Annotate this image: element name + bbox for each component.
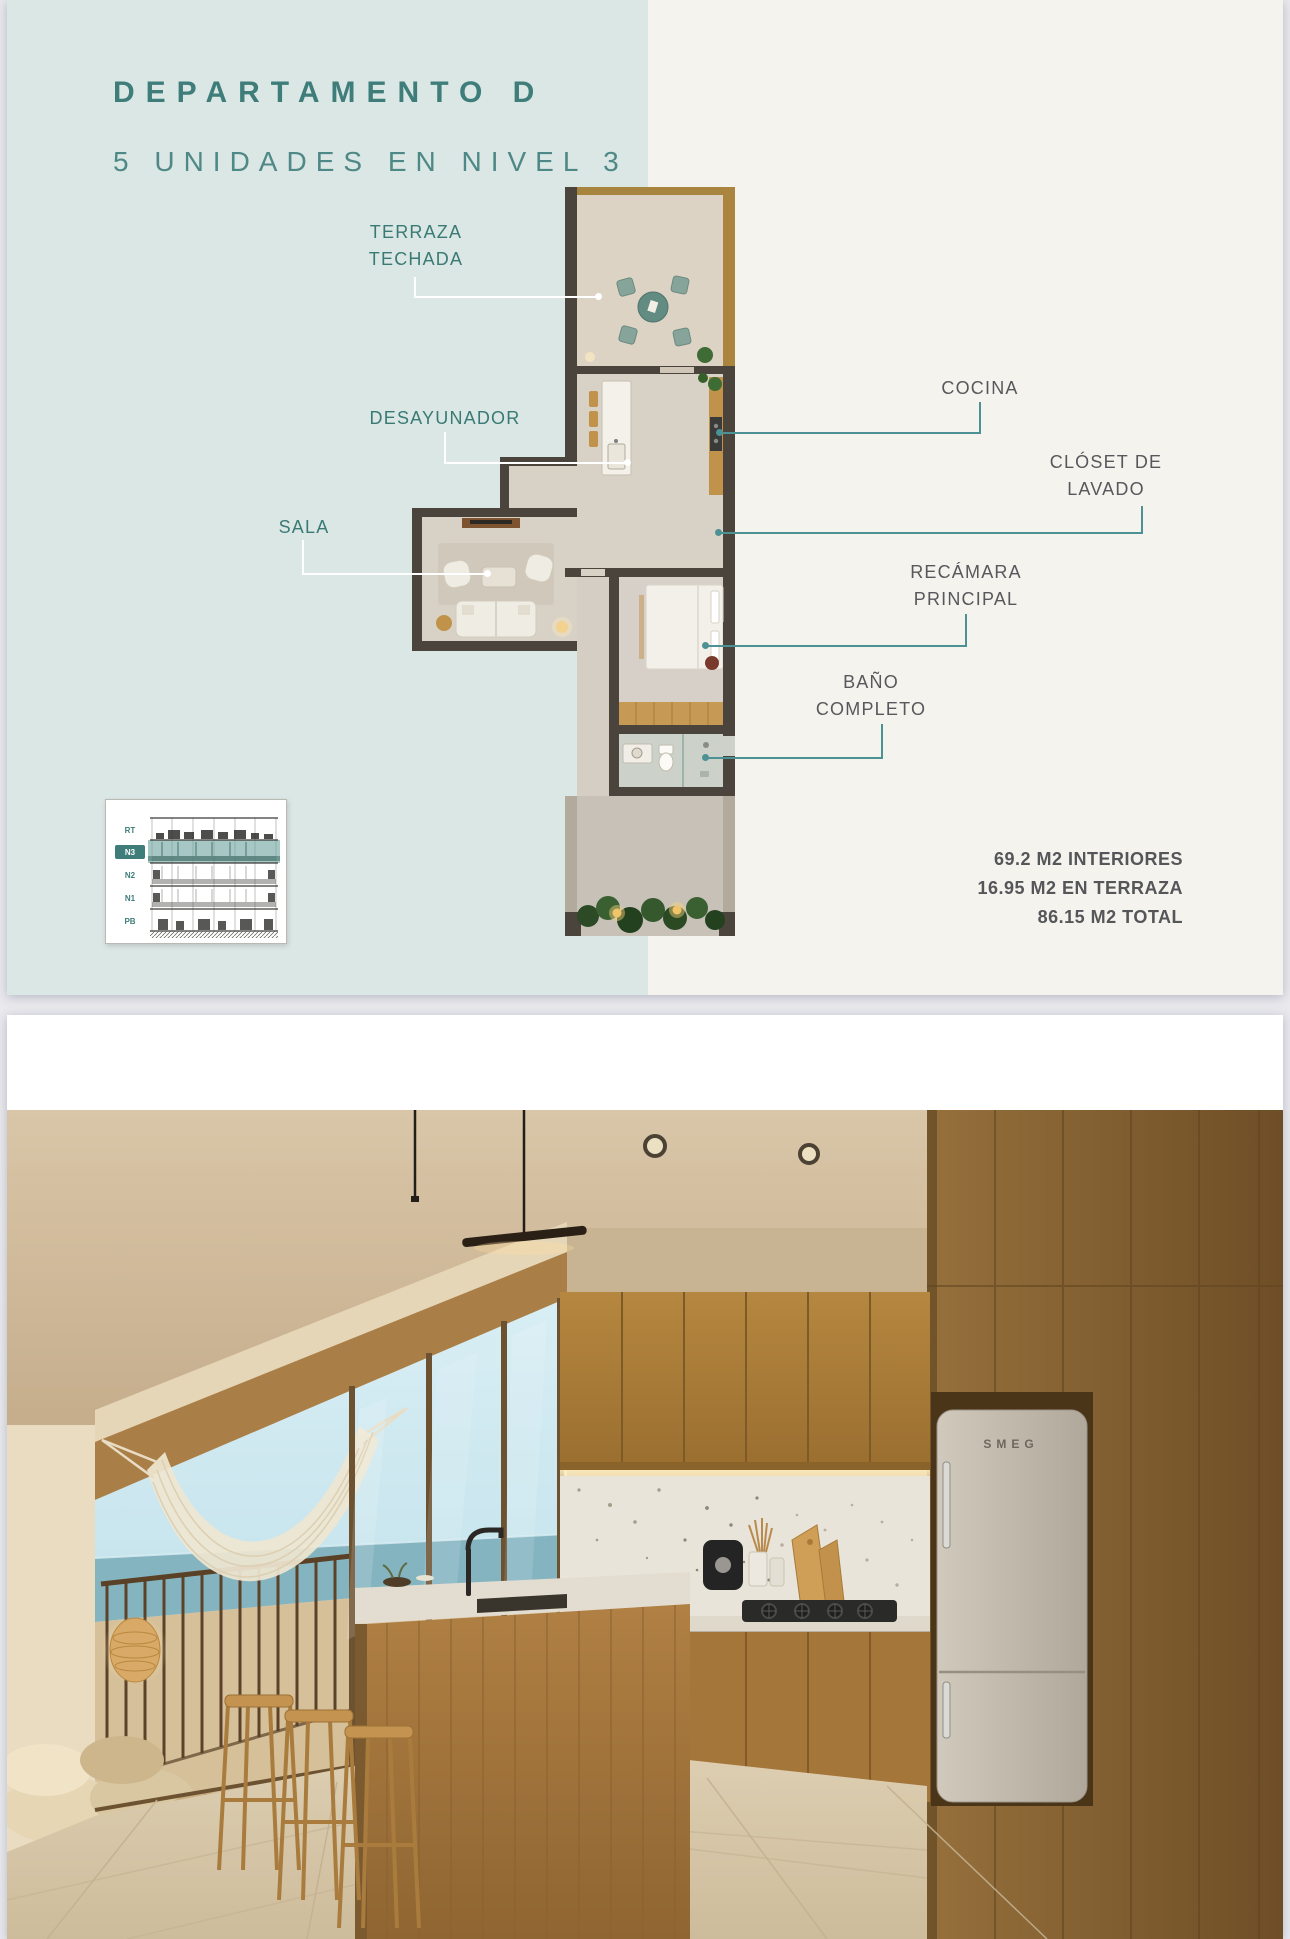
elevation-level-n2: N2 xyxy=(125,871,136,880)
plan-entry-nook xyxy=(500,457,577,508)
label-bano-completo: BAÑO COMPLETO xyxy=(816,669,926,723)
bano-leader-dot xyxy=(702,754,709,761)
area-stats: 69.2 M2 INTERIORES 16.95 M2 EN TERRAZA 8… xyxy=(977,845,1183,932)
elevation-level-pb: PB xyxy=(124,917,135,926)
elevation-key-card: RT N3 N2 N1 PB xyxy=(105,799,287,944)
floorplan-page: DEPARTAMENTO D 5 UNIDADES EN NIVEL 3 xyxy=(7,0,1283,995)
terraza-leader-dot xyxy=(595,293,602,300)
desayunador-leader-line xyxy=(444,462,627,464)
elevation-roof-items xyxy=(156,830,273,839)
coffee-machine xyxy=(703,1540,743,1590)
plan-terrace xyxy=(565,187,735,381)
label-sala: SALA xyxy=(279,514,330,541)
plan-garden xyxy=(565,796,735,936)
label-cocina: COCINA xyxy=(941,375,1018,402)
basket-lamp xyxy=(101,1616,169,1684)
closet-leader-line xyxy=(719,532,1143,534)
page-subtitle: 5 UNIDADES EN NIVEL 3 xyxy=(113,146,628,178)
area-total: 86.15 M2 TOTAL xyxy=(977,903,1183,932)
label-recamara-principal: RECÁMARA PRINCIPAL xyxy=(910,559,1022,613)
plan-bath xyxy=(609,725,735,796)
plan-wall xyxy=(565,366,735,374)
elevation-highlight-n3 xyxy=(148,840,280,863)
elevation-level-n1: N1 xyxy=(125,894,136,903)
cocina-leader-dot xyxy=(716,429,723,436)
sala-leader-dot xyxy=(484,570,491,577)
tall-wood-cabinets: SMEG xyxy=(927,1110,1283,1939)
elevation-diagram: RT N3 N2 N1 PB xyxy=(106,800,284,941)
sala-leader-line xyxy=(302,540,304,575)
page-title: DEPARTAMENTO D xyxy=(113,76,545,110)
sala-leader-line xyxy=(302,573,487,575)
refrigerator: SMEG xyxy=(937,1410,1087,1802)
kitchen-back-wall xyxy=(560,1228,932,1298)
area-terrace: 16.95 M2 EN TERRAZA xyxy=(977,874,1183,903)
recamara-leader-line xyxy=(706,645,967,647)
gas-cooktop xyxy=(742,1600,897,1622)
fridge-brand-text: SMEG xyxy=(983,1437,1038,1451)
upper-cabinets xyxy=(560,1292,930,1470)
recamara-leader-dot xyxy=(702,642,709,649)
elevation-level-n3: N3 xyxy=(125,848,136,857)
brochure-screenshot: { "page1": { "title": "DEPARTAMENTO D", … xyxy=(0,0,1290,1939)
elevation-level-rt: RT xyxy=(125,826,136,835)
terraza-leader-line xyxy=(414,277,416,298)
cocina-leader-line xyxy=(719,432,981,434)
closet-leader-dot xyxy=(715,529,722,536)
island-bowl xyxy=(383,1577,411,1587)
kitchen-render-photo: SMEG xyxy=(7,1110,1283,1939)
bano-leader-line xyxy=(706,757,883,759)
area-interiors: 69.2 M2 INTERIORES xyxy=(977,845,1183,874)
elevation-ground xyxy=(150,931,278,938)
label-terraza-techada: TERRAZA TECHADA xyxy=(369,219,463,273)
recamara-leader-line xyxy=(965,614,967,647)
desayunador-leader-line xyxy=(444,432,446,464)
bano-leader-line xyxy=(881,724,883,759)
closet-leader-line xyxy=(1141,506,1143,534)
plan-sala xyxy=(412,508,589,651)
label-desayunador: DESAYUNADOR xyxy=(370,405,521,432)
gallery-page: SMEG xyxy=(7,1015,1283,1939)
desayunador-leader-dot xyxy=(624,459,631,466)
terraza-leader-line xyxy=(414,296,598,298)
plan-door-gap xyxy=(660,367,694,373)
label-closet-de-lavado: CLÓSET DE LAVADO xyxy=(1050,449,1163,503)
cocina-leader-line xyxy=(979,402,981,434)
